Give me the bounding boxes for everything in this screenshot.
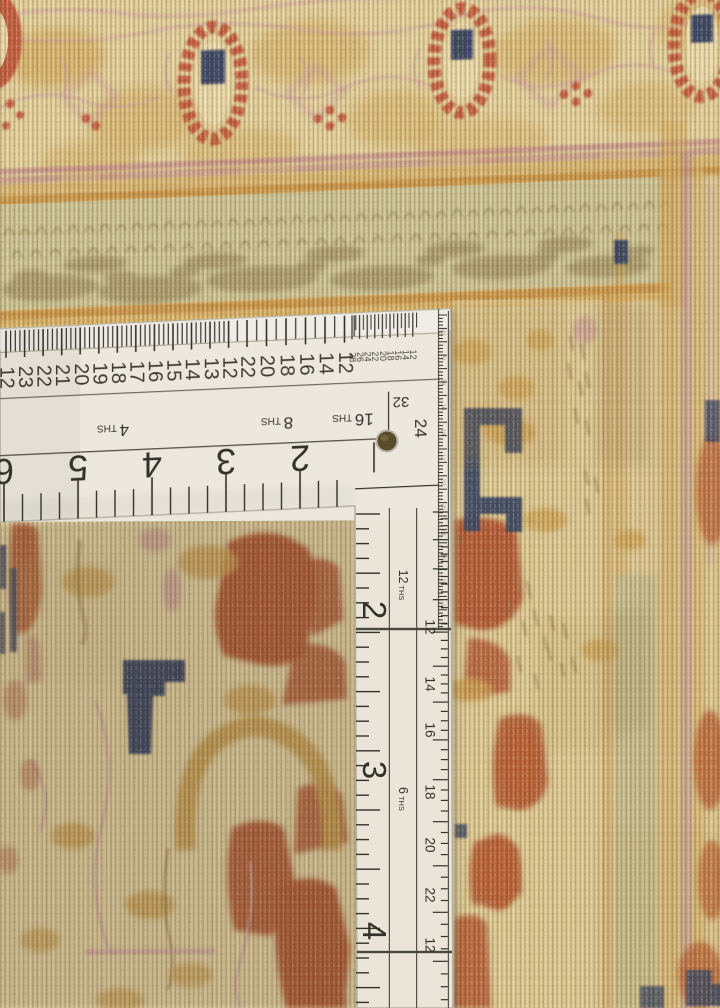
svg-text:18: 18: [276, 354, 298, 377]
svg-text:12: 12: [423, 937, 438, 952]
svg-text:32: 32: [393, 393, 410, 411]
svg-text:16: 16: [440, 404, 446, 411]
svg-text:22: 22: [440, 479, 446, 486]
svg-text:12: 12: [440, 604, 446, 611]
svg-text:16: 16: [440, 554, 446, 561]
svg-text:18: 18: [440, 529, 446, 536]
svg-text:22: 22: [440, 329, 446, 336]
svg-text:20: 20: [440, 354, 446, 361]
svg-text:2: 2: [356, 601, 393, 619]
svg-text:22: 22: [423, 887, 438, 902]
svg-text:12: 12: [408, 349, 418, 359]
svg-text:14: 14: [315, 352, 337, 375]
svg-text:16: 16: [423, 722, 438, 737]
svg-text:18: 18: [423, 784, 438, 799]
svg-text:16: 16: [295, 353, 317, 376]
svg-text:4: 4: [356, 922, 393, 940]
svg-text:22: 22: [237, 355, 259, 378]
svg-text:14: 14: [440, 579, 446, 586]
svg-text:14: 14: [440, 429, 446, 436]
svg-text:20: 20: [256, 355, 278, 378]
svg-text:14: 14: [423, 676, 438, 692]
svg-text:12: 12: [440, 454, 446, 461]
svg-text:3: 3: [356, 761, 393, 779]
svg-text:20: 20: [440, 504, 446, 511]
svg-text:18: 18: [440, 379, 446, 386]
svg-text:20: 20: [423, 837, 438, 852]
svg-text:24: 24: [411, 418, 430, 438]
